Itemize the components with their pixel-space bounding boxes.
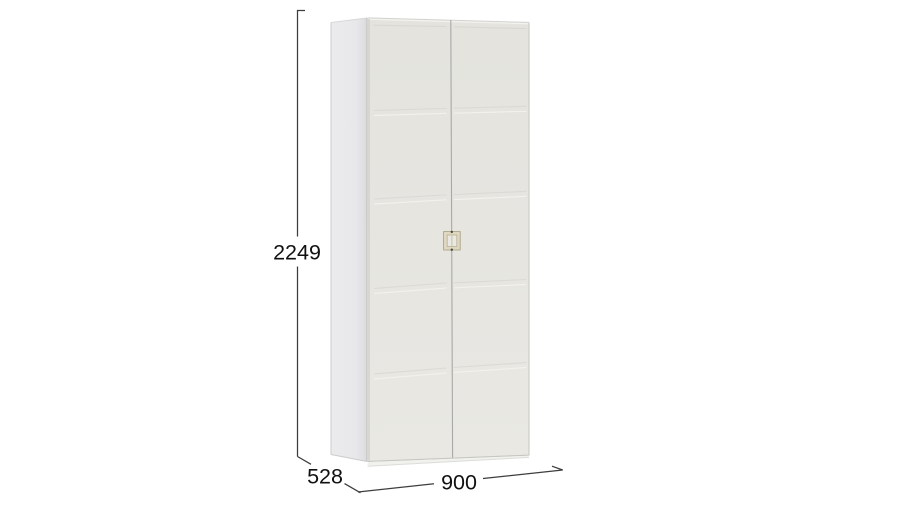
svg-text:528: 528 [307, 465, 343, 489]
svg-text:900: 900 [441, 470, 477, 494]
svg-text:2249: 2249 [273, 241, 321, 265]
